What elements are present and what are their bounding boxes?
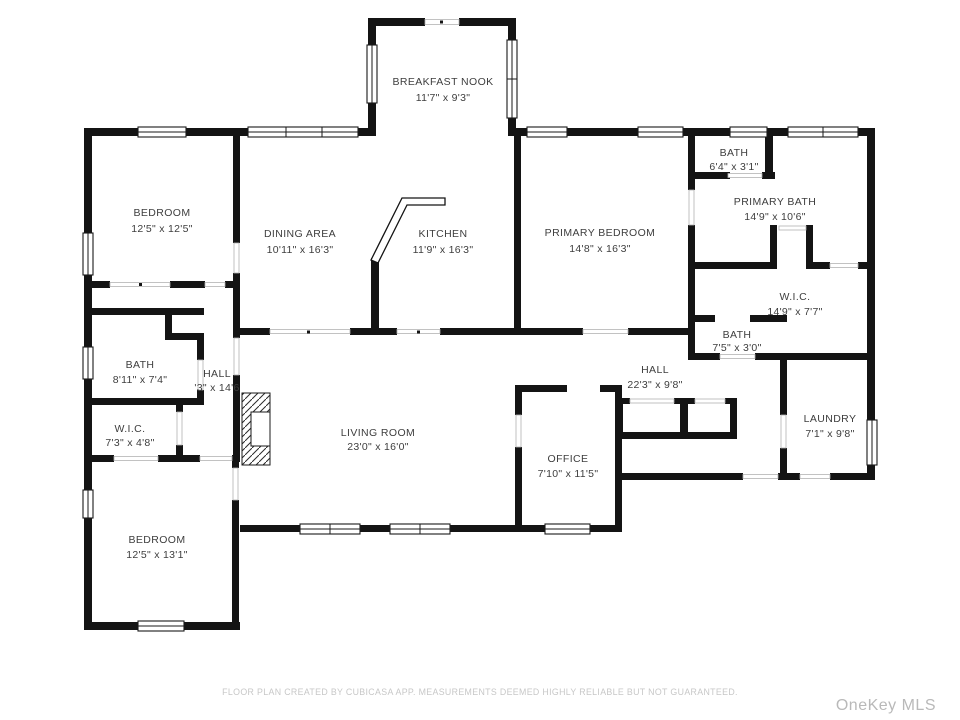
room-label-hall-right: HALL 22'3" x 9'8"	[627, 364, 682, 391]
svg-text:PRIMARY BEDROOM: PRIMARY BEDROOM	[545, 227, 656, 239]
room-label-primary-bath: PRIMARY BATH 14'9" x 10'6"	[734, 196, 816, 223]
svg-text:W.I.C.: W.I.C.	[115, 423, 146, 435]
svg-text:BATH: BATH	[720, 147, 749, 159]
room-label-wic-left: W.I.C. 7'3" x 4'8"	[105, 423, 154, 449]
svg-text:14'9" x 10'6": 14'9" x 10'6"	[744, 211, 806, 223]
svg-text:10'11" x 16'3": 10'11" x 16'3"	[267, 244, 334, 256]
svg-text:23'0" x 16'0": 23'0" x 16'0"	[347, 441, 409, 453]
svg-text:7'10" x 11'5": 7'10" x 11'5"	[538, 468, 599, 480]
fireplace	[242, 393, 270, 465]
room-label-office: OFFICE 7'10" x 11'5"	[538, 453, 599, 480]
svg-text:14'9" x 7'7": 14'9" x 7'7"	[767, 306, 822, 318]
room-label-bath-mid-right: BATH 7'5" x 3'0"	[712, 329, 761, 354]
svg-text:DINING AREA: DINING AREA	[264, 228, 336, 240]
watermark-text: OneKey MLS	[836, 697, 936, 714]
floor-plan-page: BREAKFAST NOOK 11'7" x 9'3" BEDROOM 12'5…	[0, 0, 960, 720]
svg-text:7'1" x 9'8": 7'1" x 9'8"	[805, 428, 854, 440]
room-labels: BREAKFAST NOOK 11'7" x 9'3" BEDROOM 12'5…	[105, 76, 856, 561]
svg-text:14'8" x 16'3": 14'8" x 16'3"	[569, 243, 631, 255]
svg-text:LAUNDRY: LAUNDRY	[804, 413, 857, 425]
svg-text:BEDROOM: BEDROOM	[133, 207, 190, 219]
svg-text:BREAKFAST NOOK: BREAKFAST NOOK	[392, 76, 493, 88]
room-label-bedroom-bottom-left: BEDROOM 12'5" x 13'1"	[126, 534, 188, 561]
room-label-dining-area: DINING AREA 10'11" x 16'3"	[264, 228, 336, 256]
room-label-laundry: LAUNDRY 7'1" x 9'8"	[804, 413, 857, 440]
walls	[84, 18, 875, 630]
svg-text:12'5" x 12'5": 12'5" x 12'5"	[131, 223, 193, 235]
room-label-wic-right: W.I.C. 14'9" x 7'7"	[767, 291, 822, 318]
svg-text:KITCHEN: KITCHEN	[419, 228, 468, 240]
svg-text:BEDROOM: BEDROOM	[128, 534, 185, 546]
svg-text:LIVING ROOM: LIVING ROOM	[341, 427, 415, 439]
svg-text:8'11" x 7'4": 8'11" x 7'4"	[113, 374, 168, 386]
svg-text:11'9" x 16'3": 11'9" x 16'3"	[413, 244, 474, 256]
svg-text:6'4" x 3'1": 6'4" x 3'1"	[709, 161, 758, 173]
room-label-bath-left: BATH 8'11" x 7'4"	[113, 359, 168, 386]
floor-plan-drawing: BREAKFAST NOOK 11'7" x 9'3" BEDROOM 12'5…	[0, 0, 960, 720]
svg-text:11'7" x 9'3": 11'7" x 9'3"	[416, 92, 471, 104]
svg-text:PRIMARY BATH: PRIMARY BATH	[734, 196, 816, 208]
svg-text:BATH: BATH	[126, 359, 155, 371]
disclaimer-text: FLOOR PLAN CREATED BY CUBICASA APP. MEAS…	[222, 687, 738, 697]
svg-text:7'5" x 3'0": 7'5" x 3'0"	[712, 342, 761, 354]
svg-text:HALL: HALL	[641, 364, 669, 376]
svg-text:OFFICE: OFFICE	[548, 453, 589, 465]
svg-text:'3" x 14'6: '3" x 14'6	[194, 382, 239, 394]
room-label-bath-top: BATH 6'4" x 3'1"	[709, 147, 758, 173]
room-label-living-room: LIVING ROOM 23'0" x 16'0"	[341, 427, 415, 453]
door-openings	[110, 20, 858, 501]
room-label-primary-bedroom: PRIMARY BEDROOM 14'8" x 16'3"	[545, 227, 656, 255]
svg-text:W.I.C.: W.I.C.	[780, 291, 811, 303]
svg-text:22'3" x 9'8": 22'3" x 9'8"	[627, 379, 682, 391]
svg-text:7'3" x 4'8": 7'3" x 4'8"	[105, 437, 154, 449]
room-label-bedroom-top-left: BEDROOM 12'5" x 12'5"	[131, 207, 193, 235]
svg-text:HALL: HALL	[203, 368, 231, 380]
svg-text:12'5" x 13'1": 12'5" x 13'1"	[126, 549, 188, 561]
room-label-breakfast-nook: BREAKFAST NOOK 11'7" x 9'3"	[392, 76, 493, 104]
svg-text:BATH: BATH	[723, 329, 752, 341]
room-label-kitchen: KITCHEN 11'9" x 16'3"	[413, 228, 474, 256]
